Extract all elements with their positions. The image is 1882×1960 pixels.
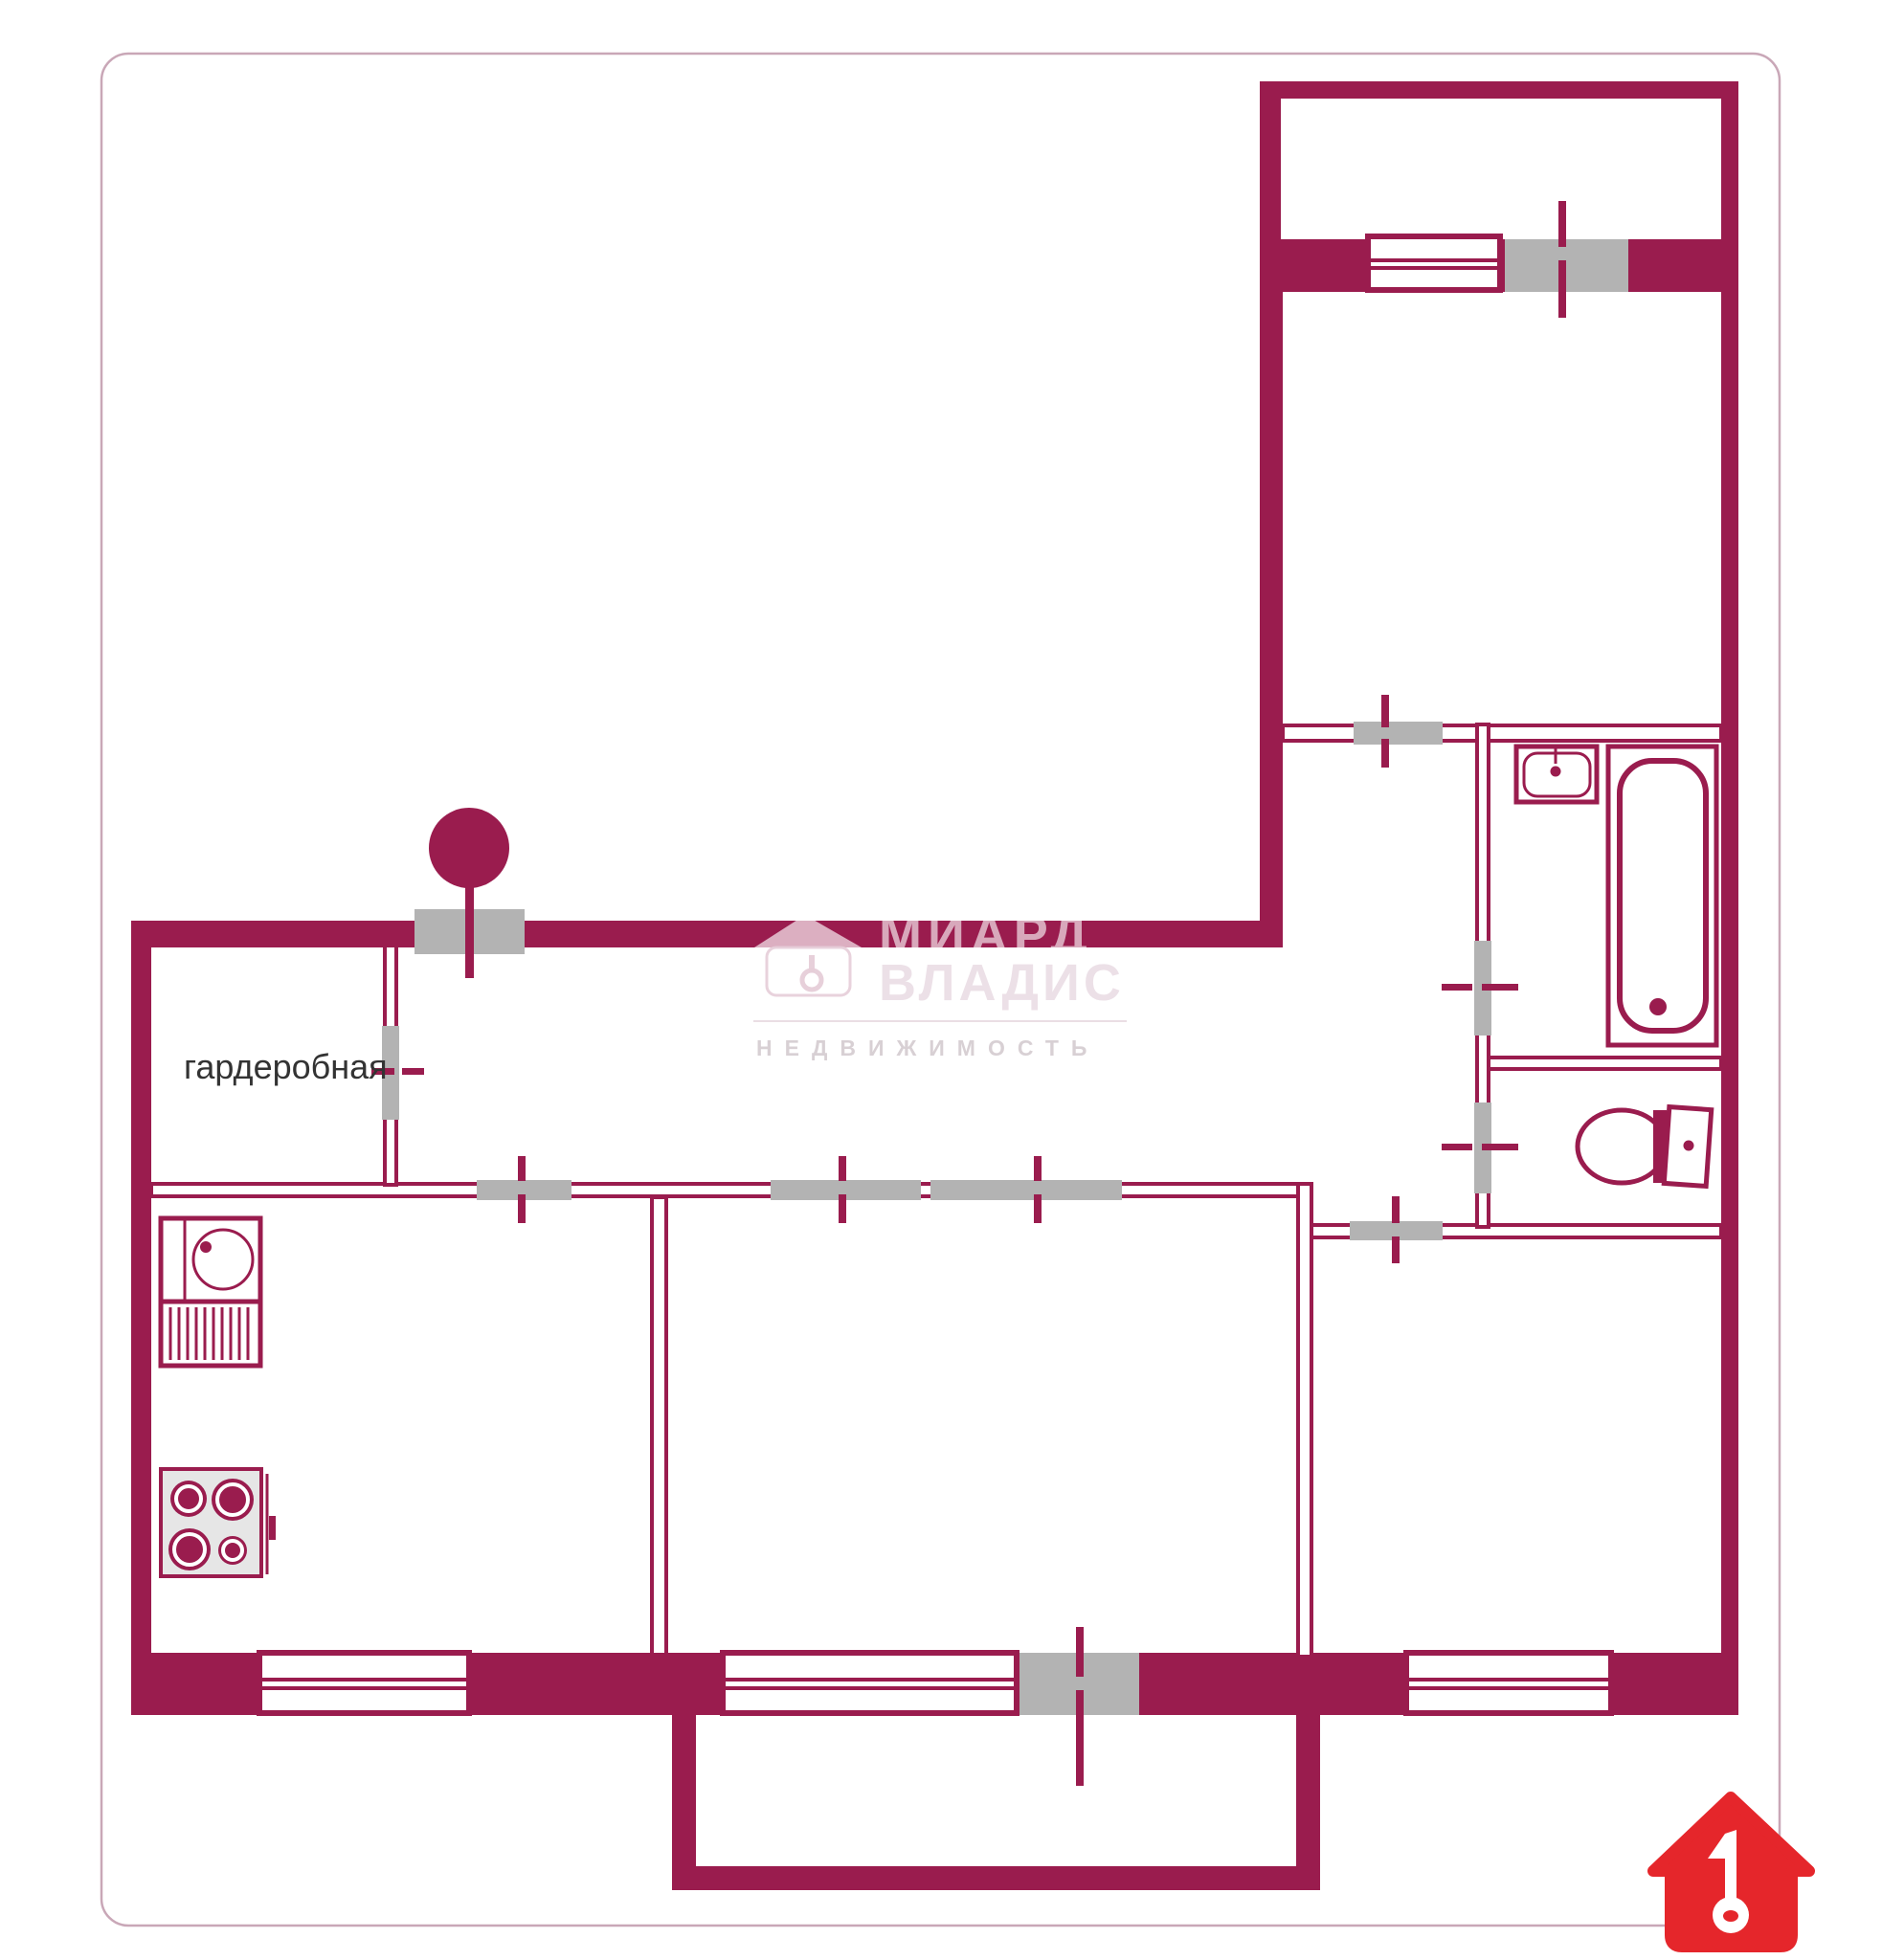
livingroom-window [723, 1653, 1017, 1713]
toilet-icon [1578, 1107, 1712, 1187]
watermark: МИАРД ВЛАДИС НЕДВИЖИМОСТЬ [753, 906, 1127, 1060]
corridor-bottom-wall [151, 1184, 1311, 1196]
floor-plan-canvas: МИАРД ВЛАДИС НЕДВИЖИМОСТЬ гардеробная [0, 0, 1882, 1960]
bathroom-sink-icon [1516, 746, 1597, 802]
top-room-left-wall [1260, 244, 1283, 947]
stove-icon [161, 1469, 276, 1576]
bottom-balcony-bottom-wall [672, 1866, 1320, 1890]
top-balcony-right-wall [1721, 81, 1738, 246]
top-balcony-left-wall [1260, 81, 1281, 246]
hall-bathroom-top-wall [1283, 725, 1721, 741]
right-exterior-wall [1721, 244, 1738, 1659]
livingroom-door-right [930, 1180, 1122, 1200]
drain-board-icon [161, 1302, 260, 1366]
top-balcony-door [1505, 239, 1628, 292]
bottom-right-room-left-wall [1298, 1184, 1311, 1657]
bathroom-wc-divider-wall [1489, 1058, 1721, 1069]
logo-keyhole-icon [1723, 1910, 1738, 1922]
agency-logo [1653, 1797, 1809, 1947]
floor-plan-drawing: МИАРД ВЛАДИС НЕДВИЖИМОСТЬ гардеробная [0, 0, 1882, 1960]
top-room-door [1354, 722, 1443, 745]
top-balcony-window [1368, 236, 1500, 290]
kitchen-sink-icon [161, 1218, 260, 1302]
bottom-right-window [1406, 1653, 1611, 1713]
top-balcony-top-wall [1260, 81, 1738, 99]
kitchen-livingroom-wall [652, 1197, 666, 1655]
corridor-top-wall [131, 921, 1283, 947]
watermark-tagline: НЕДВИЖИМОСТЬ [756, 1036, 1099, 1060]
bottom-balcony-left-wall [672, 1713, 696, 1890]
wardrobe-room-label: гардеробная [184, 1047, 388, 1086]
bathtub-icon [1608, 746, 1716, 1045]
watermark-brand-bottom: ВЛАДИС [879, 954, 1125, 1012]
bottom-balcony-right-wall [1296, 1713, 1320, 1890]
kitchen-window [259, 1653, 469, 1713]
watermark-divider [753, 1020, 1127, 1022]
left-exterior-wall [131, 921, 151, 1715]
